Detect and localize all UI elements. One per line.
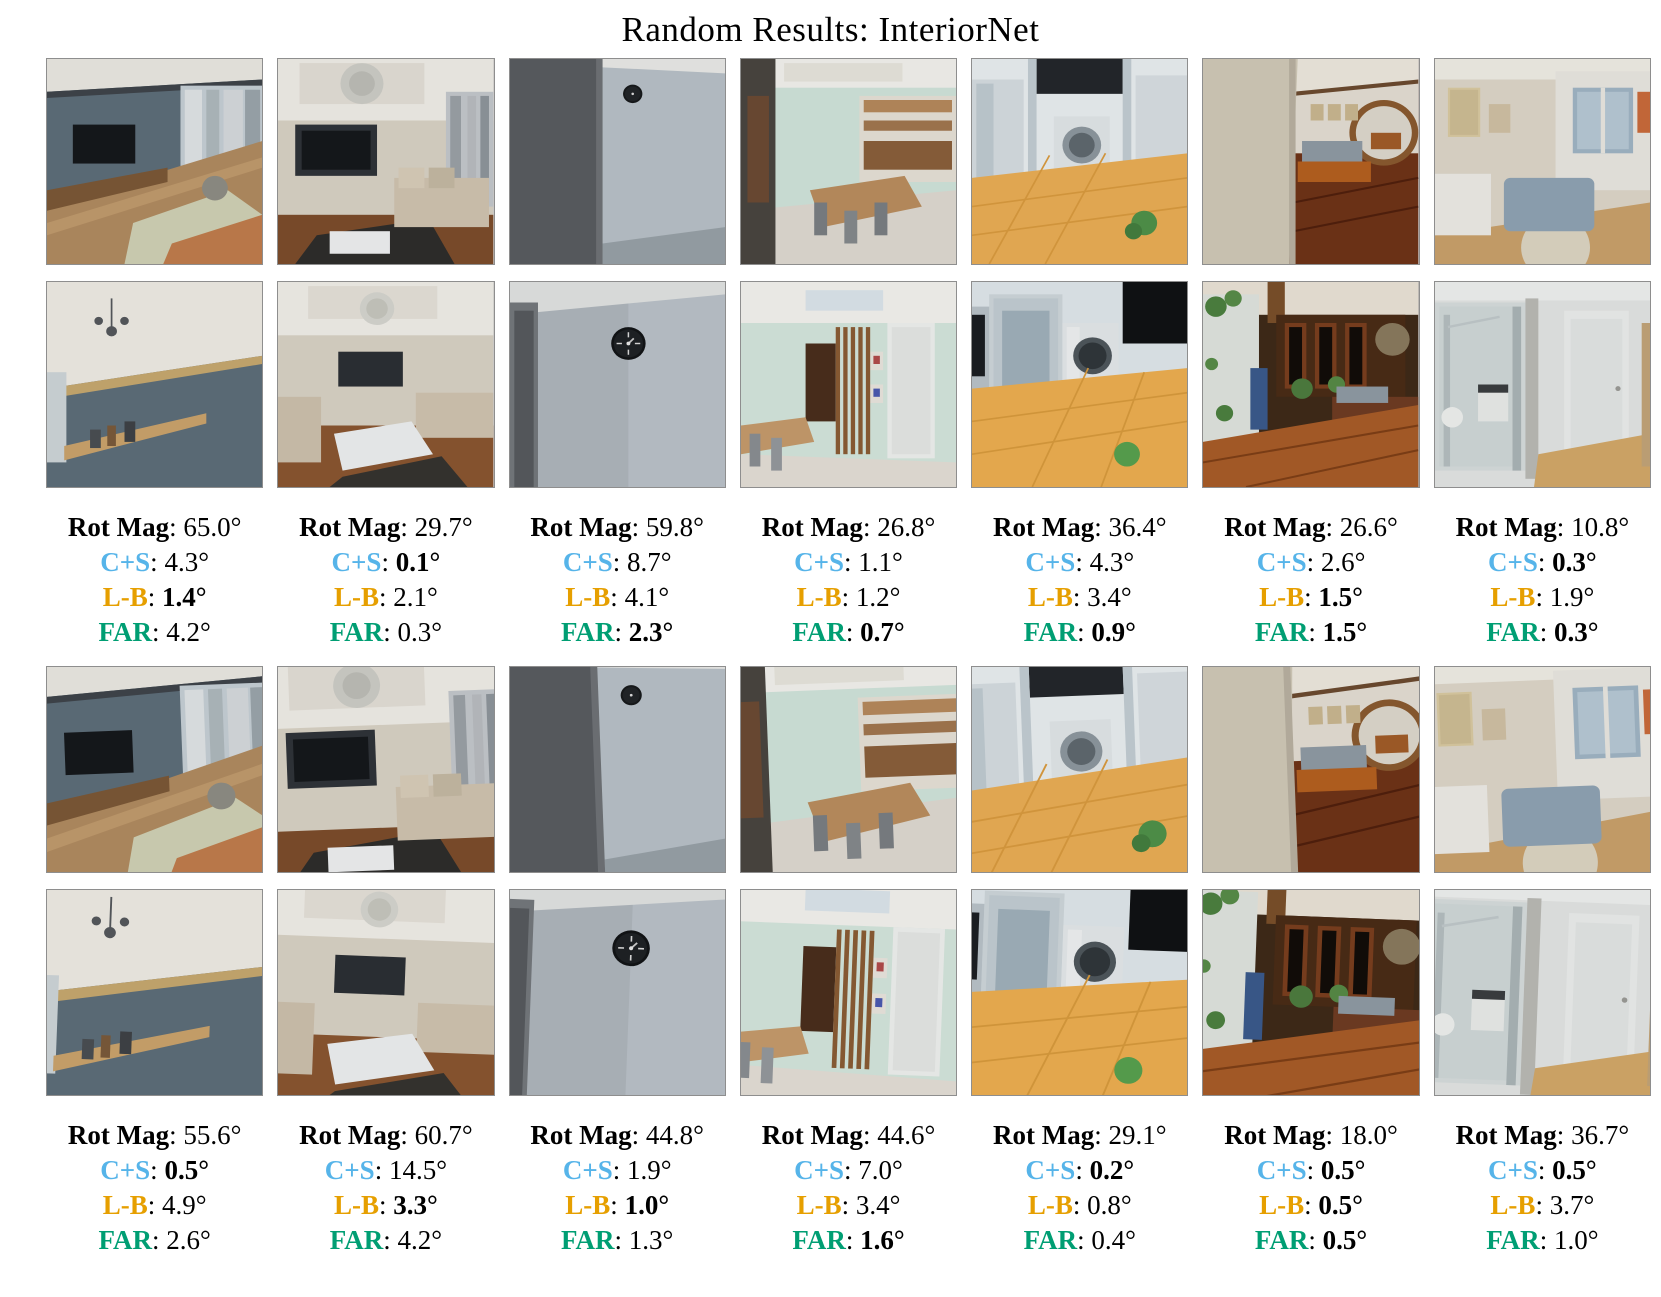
metrics-block: Rot Mag: 44.6°C+S: 7.0°L-B: 3.4°FAR: 1.6… [740,1112,957,1274]
metric-colon: : [610,582,624,612]
metric-row-lb: L-B: 0.8° [971,1188,1188,1223]
metric-row-cs: C+S: 1.9° [509,1153,726,1188]
metric-row-lb: L-B: 0.5° [1202,1188,1419,1223]
metric-value-cs: 0.1° [396,547,441,577]
scene-thumbnail-bedroom-wardrobe-and-bathroom-pair2-top [1434,666,1651,873]
metric-label-far: FAR [98,617,152,647]
metric-row-far: FAR: 4.2° [277,1223,494,1258]
metric-label-rot_mag: Rot Mag [1224,512,1325,542]
metrics-block: Rot Mag: 29.1°C+S: 0.2°L-B: 0.8°FAR: 0.4… [971,1112,1188,1274]
metric-row-lb: L-B: 4.9° [46,1188,263,1223]
metric-colon: : [615,617,629,647]
metric-label-cs: C+S [1025,1155,1075,1185]
metric-colon: : [1094,512,1108,542]
metric-value-cs: 0.5° [1321,1155,1366,1185]
metric-colon: : [1073,1190,1087,1220]
metric-value-far: 1.0° [1554,1225,1599,1255]
metric-colon: : [844,547,858,577]
metric-row-rot_mag: Rot Mag: 18.0° [1202,1118,1419,1153]
metric-value-lb: 4.1° [625,582,670,612]
metric-colon: : [615,1225,629,1255]
metric-colon: : [1077,1225,1091,1255]
metric-colon: : [632,512,646,542]
metric-value-cs: 2.6° [1321,547,1366,577]
metric-label-far: FAR [1255,1225,1309,1255]
metric-colon: : [846,1225,860,1255]
metric-value-lb: 4.9° [162,1190,207,1220]
scene-thumbnail-wood-floor-chinese-living-room-pair2-bottom [1202,889,1419,1096]
metric-colon: : [1326,1120,1340,1150]
result-column-5: Rot Mag: 36.4°C+S: 4.3°L-B: 3.4°FAR: 0.9… [971,58,1188,1274]
scene-thumbnail-classic-living-room-chandelier-pair1-top [277,58,494,265]
metric-label-lb: L-B [1259,582,1304,612]
scene-thumbnail-mint-dining-room-pair1-top [740,58,957,265]
metric-value-far: 0.3° [1554,617,1599,647]
metric-label-lb: L-B [1028,1190,1073,1220]
metric-colon: : [400,1120,414,1150]
metric-value-far: 1.5° [1323,617,1368,647]
metric-label-lb: L-B [797,1190,842,1220]
metric-label-lb: L-B [334,582,379,612]
results-grid: Rot Mag: 65.0°C+S: 4.3°L-B: 1.4°FAR: 4.2… [0,56,1661,1274]
metric-label-rot_mag: Rot Mag [530,512,631,542]
metric-row-lb: L-B: 1.9° [1434,580,1651,615]
metric-row-lb: L-B: 3.3° [277,1188,494,1223]
metric-colon: : [1304,582,1318,612]
metric-row-far: FAR: 1.3° [509,1223,726,1258]
metric-label-lb: L-B [565,1190,610,1220]
metric-colon: : [842,1190,856,1220]
metric-colon: : [1540,1225,1554,1255]
metric-colon: : [1307,547,1321,577]
metric-value-lb: 3.7° [1550,1190,1595,1220]
metric-label-cs: C+S [1025,547,1075,577]
figure-title: Random Results: InteriorNet [0,0,1661,56]
metric-label-far: FAR [1486,617,1540,647]
metric-row-lb: L-B: 3.4° [971,580,1188,615]
metric-label-rot_mag: Rot Mag [762,512,863,542]
metric-row-cs: C+S: 14.5° [277,1153,494,1188]
metric-label-cs: C+S [794,1155,844,1185]
metric-colon: : [1557,512,1571,542]
metric-row-cs: C+S: 7.0° [740,1153,957,1188]
metric-value-far: 2.3° [629,617,674,647]
metric-colon: : [610,1190,624,1220]
metric-colon: : [379,1190,393,1220]
metric-row-far: FAR: 1.0° [1434,1223,1651,1258]
scene-thumbnail-wood-floor-chinese-living-room-pair2-top [1202,666,1419,873]
scene-thumbnail-laundry-balcony-orange-tile-pair1-bottom [971,281,1188,488]
metric-colon: : [1307,1155,1321,1185]
metric-label-rot_mag: Rot Mag [762,1120,863,1150]
metric-row-rot_mag: Rot Mag: 44.8° [509,1118,726,1153]
metric-colon: : [863,512,877,542]
metric-value-far: 1.3° [629,1225,674,1255]
metric-row-lb: L-B: 2.1° [277,580,494,615]
metric-label-rot_mag: Rot Mag [1456,512,1557,542]
metric-colon: : [148,582,162,612]
metric-colon: : [1326,512,1340,542]
metric-colon: : [381,547,395,577]
scene-thumbnail-gray-wall-corner-clock-pair2-top [509,666,726,873]
metric-colon: : [152,1225,166,1255]
metric-label-rot_mag: Rot Mag [993,1120,1094,1150]
metrics-block: Rot Mag: 55.6°C+S: 0.5°L-B: 4.9°FAR: 2.6… [46,1112,263,1274]
metric-value-lb: 3.3° [393,1190,438,1220]
metric-value-rot_mag: 29.7° [415,512,473,542]
metric-row-cs: C+S: 0.5° [46,1153,263,1188]
metrics-block: Rot Mag: 18.0°C+S: 0.5°L-B: 0.5°FAR: 0.5… [1202,1112,1419,1274]
metric-value-cs: 4.3° [1090,547,1135,577]
metric-label-rot_mag: Rot Mag [68,1120,169,1150]
metric-row-rot_mag: Rot Mag: 44.6° [740,1118,957,1153]
metric-label-rot_mag: Rot Mag [68,512,169,542]
metric-value-far: 4.2° [398,1225,443,1255]
metric-colon: : [379,582,393,612]
metric-row-far: FAR: 0.7° [740,615,957,650]
metric-colon: : [150,547,164,577]
metric-value-far: 0.9° [1091,617,1136,647]
metric-value-rot_mag: 26.8° [877,512,935,542]
metric-label-cs: C+S [1488,1155,1538,1185]
metric-value-rot_mag: 36.7° [1571,1120,1629,1150]
metric-value-rot_mag: 44.6° [877,1120,935,1150]
scene-thumbnail-living-room-blue-gray-tv-pair1-top [46,58,263,265]
metric-value-far: 4.2° [166,617,211,647]
scene-thumbnail-gray-wall-corner-clock-pair1-top [509,58,726,265]
metric-row-rot_mag: Rot Mag: 26.8° [740,510,957,545]
metric-value-cs: 0.3° [1552,547,1597,577]
metric-row-rot_mag: Rot Mag: 36.4° [971,510,1188,545]
metric-colon: : [1538,547,1552,577]
metric-row-lb: L-B: 1.0° [509,1188,726,1223]
metric-value-far: 0.4° [1091,1225,1136,1255]
metric-value-lb: 3.4° [1087,582,1132,612]
metric-colon: : [383,1225,397,1255]
metric-value-rot_mag: 60.7° [415,1120,473,1150]
scene-thumbnail-living-room-blue-gray-tv-pair2-bottom [46,889,263,1096]
metric-label-lb: L-B [103,1190,148,1220]
metric-value-rot_mag: 10.8° [1571,512,1629,542]
metric-value-lb: 0.5° [1318,1190,1363,1220]
metrics-block: Rot Mag: 59.8°C+S: 8.7°L-B: 4.1°FAR: 2.3… [509,504,726,666]
metric-label-far: FAR [792,617,846,647]
metric-label-rot_mag: Rot Mag [530,1120,631,1150]
metric-value-rot_mag: 65.0° [183,512,241,542]
metric-label-rot_mag: Rot Mag [299,512,400,542]
metric-label-cs: C+S [325,1155,375,1185]
metric-value-rot_mag: 36.4° [1109,512,1167,542]
scene-thumbnail-mint-dining-room-pair2-bottom [740,889,957,1096]
metrics-block: Rot Mag: 29.7°C+S: 0.1°L-B: 2.1°FAR: 0.3… [277,504,494,666]
metric-row-cs: C+S: 0.3° [1434,545,1651,580]
metric-value-far: 2.6° [166,1225,211,1255]
metric-value-lb: 3.4° [856,1190,901,1220]
metric-label-rot_mag: Rot Mag [299,1120,400,1150]
metric-label-cs: C+S [794,547,844,577]
metric-value-cs: 0.2° [1090,1155,1135,1185]
metric-row-far: FAR: 0.4° [971,1223,1188,1258]
metric-colon: : [169,512,183,542]
scene-thumbnail-mint-dining-room-pair1-bottom [740,281,957,488]
metric-colon: : [383,617,397,647]
metric-label-cs: C+S [563,547,613,577]
metric-colon: : [1073,582,1087,612]
scene-thumbnail-mint-dining-room-pair2-top [740,666,957,873]
metric-value-rot_mag: 26.6° [1340,512,1398,542]
metric-row-lb: L-B: 4.1° [509,580,726,615]
metric-value-cs: 4.3° [164,547,209,577]
scene-thumbnail-bedroom-wardrobe-and-bathroom-pair1-bottom [1434,281,1651,488]
metrics-block: Rot Mag: 60.7°C+S: 14.5°L-B: 3.3°FAR: 4.… [277,1112,494,1274]
metric-value-lb: 1.0° [625,1190,670,1220]
metric-row-far: FAR: 2.6° [46,1223,263,1258]
metric-label-cs: C+S [1257,547,1307,577]
metric-value-far: 0.3° [398,617,443,647]
metric-colon: : [400,512,414,542]
metric-value-cs: 14.5° [389,1155,447,1185]
metric-colon: : [150,1155,164,1185]
scene-thumbnail-classic-living-room-chandelier-pair2-top [277,666,494,873]
metric-colon: : [1535,1190,1549,1220]
metric-row-far: FAR: 0.3° [1434,615,1651,650]
metric-label-lb: L-B [1490,1190,1535,1220]
metric-row-far: FAR: 0.3° [277,615,494,650]
metric-colon: : [1535,582,1549,612]
metric-row-lb: L-B: 1.5° [1202,580,1419,615]
result-column-2: Rot Mag: 29.7°C+S: 0.1°L-B: 2.1°FAR: 0.3… [277,58,494,1274]
metric-row-cs: C+S: 8.7° [509,545,726,580]
metric-row-far: FAR: 2.3° [509,615,726,650]
metric-colon: : [375,1155,389,1185]
metric-row-cs: C+S: 0.5° [1202,1153,1419,1188]
metric-label-lb: L-B [797,582,842,612]
metric-row-rot_mag: Rot Mag: 10.8° [1434,510,1651,545]
metric-colon: : [1557,1120,1571,1150]
metric-row-rot_mag: Rot Mag: 29.7° [277,510,494,545]
metric-row-far: FAR: 1.6° [740,1223,957,1258]
metric-label-lb: L-B [1490,582,1535,612]
scene-thumbnail-living-room-blue-gray-tv-pair1-bottom [46,281,263,488]
metric-label-cs: C+S [332,547,382,577]
metric-colon: : [613,547,627,577]
metric-row-lb: L-B: 1.4° [46,580,263,615]
metric-label-lb: L-B [1028,582,1073,612]
metric-colon: : [844,1155,858,1185]
metric-value-cs: 0.5° [1552,1155,1597,1185]
metrics-block: Rot Mag: 36.7°C+S: 0.5°L-B: 3.7°FAR: 1.0… [1434,1112,1651,1274]
metric-label-rot_mag: Rot Mag [1224,1120,1325,1150]
metric-label-far: FAR [1255,617,1309,647]
metric-value-lb: 1.4° [162,582,207,612]
metric-colon: : [1540,617,1554,647]
scene-thumbnail-classic-living-room-chandelier-pair2-bottom [277,889,494,1096]
metric-label-cs: C+S [563,1155,613,1185]
scene-thumbnail-bedroom-wardrobe-and-bathroom-pair1-top [1434,58,1651,265]
metric-row-cs: C+S: 2.6° [1202,545,1419,580]
metric-label-far: FAR [98,1225,152,1255]
metric-label-rot_mag: Rot Mag [1456,1120,1557,1150]
metric-label-cs: C+S [100,547,150,577]
metric-row-cs: C+S: 4.3° [46,545,263,580]
metric-value-lb: 0.8° [1087,1190,1132,1220]
scene-thumbnail-living-room-blue-gray-tv-pair2-top [46,666,263,873]
metric-row-lb: L-B: 3.7° [1434,1188,1651,1223]
metric-label-rot_mag: Rot Mag [993,512,1094,542]
metric-value-far: 0.7° [860,617,905,647]
metric-label-far: FAR [330,617,384,647]
metric-value-cs: 7.0° [858,1155,903,1185]
result-column-7: Rot Mag: 10.8°C+S: 0.3°L-B: 1.9°FAR: 0.3… [1434,58,1651,1274]
metric-label-far: FAR [1486,1225,1540,1255]
scene-thumbnail-laundry-balcony-orange-tile-pair2-top [971,666,1188,873]
scene-thumbnail-gray-wall-corner-clock-pair2-bottom [509,889,726,1096]
scene-thumbnail-laundry-balcony-orange-tile-pair2-bottom [971,889,1188,1096]
metric-label-far: FAR [792,1225,846,1255]
metric-row-rot_mag: Rot Mag: 36.7° [1434,1118,1651,1153]
metric-row-far: FAR: 0.5° [1202,1223,1419,1258]
scene-thumbnail-bedroom-wardrobe-and-bathroom-pair2-bottom [1434,889,1651,1096]
metric-colon: : [169,1120,183,1150]
result-column-6: Rot Mag: 26.6°C+S: 2.6°L-B: 1.5°FAR: 1.5… [1202,58,1419,1274]
result-column-3: Rot Mag: 59.8°C+S: 8.7°L-B: 4.1°FAR: 2.3… [509,58,726,1274]
result-column-4: Rot Mag: 26.8°C+S: 1.1°L-B: 1.2°FAR: 0.7… [740,58,957,1274]
metric-value-far: 1.6° [860,1225,905,1255]
metric-label-cs: C+S [100,1155,150,1185]
scene-thumbnail-gray-wall-corner-clock-pair1-bottom [509,281,726,488]
metric-row-cs: C+S: 0.1° [277,545,494,580]
metric-colon: : [1075,547,1089,577]
metric-value-cs: 8.7° [627,547,672,577]
metric-colon: : [1094,1120,1108,1150]
metric-row-far: FAR: 0.9° [971,615,1188,650]
metric-colon: : [1538,1155,1552,1185]
metric-colon: : [148,1190,162,1220]
metrics-block: Rot Mag: 26.8°C+S: 1.1°L-B: 1.2°FAR: 0.7… [740,504,957,666]
scene-thumbnail-laundry-balcony-orange-tile-pair1-top [971,58,1188,265]
metrics-block: Rot Mag: 44.8°C+S: 1.9°L-B: 1.0°FAR: 1.3… [509,1112,726,1274]
metric-colon: : [1075,1155,1089,1185]
metric-label-cs: C+S [1488,547,1538,577]
metric-row-rot_mag: Rot Mag: 65.0° [46,510,263,545]
metric-label-far: FAR [330,1225,384,1255]
metric-value-rot_mag: 29.1° [1109,1120,1167,1150]
metric-colon: : [1304,1190,1318,1220]
metric-value-cs: 0.5° [164,1155,209,1185]
metric-row-lb: L-B: 1.2° [740,580,957,615]
metric-row-cs: C+S: 4.3° [971,545,1188,580]
metric-value-rot_mag: 55.6° [183,1120,241,1150]
metric-row-cs: C+S: 1.1° [740,545,957,580]
metrics-block: Rot Mag: 10.8°C+S: 0.3°L-B: 1.9°FAR: 0.3… [1434,504,1651,666]
metric-value-lb: 1.9° [1550,582,1595,612]
metric-value-far: 0.5° [1323,1225,1368,1255]
metric-label-far: FAR [1024,1225,1078,1255]
metric-label-far: FAR [1024,617,1078,647]
metric-colon: : [613,1155,627,1185]
scene-thumbnail-wood-floor-chinese-living-room-pair1-bottom [1202,281,1419,488]
metric-colon: : [1077,617,1091,647]
metric-colon: : [863,1120,877,1150]
metric-row-rot_mag: Rot Mag: 60.7° [277,1118,494,1153]
metric-colon: : [632,1120,646,1150]
metric-value-lb: 1.5° [1318,582,1363,612]
result-column-1: Rot Mag: 65.0°C+S: 4.3°L-B: 1.4°FAR: 4.2… [46,58,263,1274]
metric-colon: : [846,617,860,647]
metric-label-cs: C+S [1257,1155,1307,1185]
metric-label-far: FAR [561,1225,615,1255]
metric-row-rot_mag: Rot Mag: 55.6° [46,1118,263,1153]
metric-row-lb: L-B: 3.4° [740,1188,957,1223]
metric-row-cs: C+S: 0.2° [971,1153,1188,1188]
metric-label-lb: L-B [565,582,610,612]
metric-colon: : [152,617,166,647]
metric-colon: : [1308,617,1322,647]
metric-label-lb: L-B [334,1190,379,1220]
metric-row-far: FAR: 1.5° [1202,615,1419,650]
metric-value-cs: 1.1° [858,547,903,577]
metric-label-far: FAR [561,617,615,647]
metrics-block: Rot Mag: 65.0°C+S: 4.3°L-B: 1.4°FAR: 4.2… [46,504,263,666]
metric-value-rot_mag: 59.8° [646,512,704,542]
metric-label-lb: L-B [1259,1190,1304,1220]
metric-row-rot_mag: Rot Mag: 59.8° [509,510,726,545]
metrics-block: Rot Mag: 36.4°C+S: 4.3°L-B: 3.4°FAR: 0.9… [971,504,1188,666]
metrics-block: Rot Mag: 26.6°C+S: 2.6°L-B: 1.5°FAR: 1.5… [1202,504,1419,666]
metric-label-lb: L-B [103,582,148,612]
metric-colon: : [1308,1225,1322,1255]
metric-value-rot_mag: 18.0° [1340,1120,1398,1150]
metric-row-rot_mag: Rot Mag: 29.1° [971,1118,1188,1153]
metric-value-cs: 1.9° [627,1155,672,1185]
scene-thumbnail-wood-floor-chinese-living-room-pair1-top [1202,58,1419,265]
metric-row-rot_mag: Rot Mag: 26.6° [1202,510,1419,545]
metric-value-lb: 2.1° [393,582,438,612]
metric-row-far: FAR: 4.2° [46,615,263,650]
scene-thumbnail-classic-living-room-chandelier-pair1-bottom [277,281,494,488]
metric-row-cs: C+S: 0.5° [1434,1153,1651,1188]
metric-colon: : [842,582,856,612]
metric-value-rot_mag: 44.8° [646,1120,704,1150]
metric-value-lb: 1.2° [856,582,901,612]
